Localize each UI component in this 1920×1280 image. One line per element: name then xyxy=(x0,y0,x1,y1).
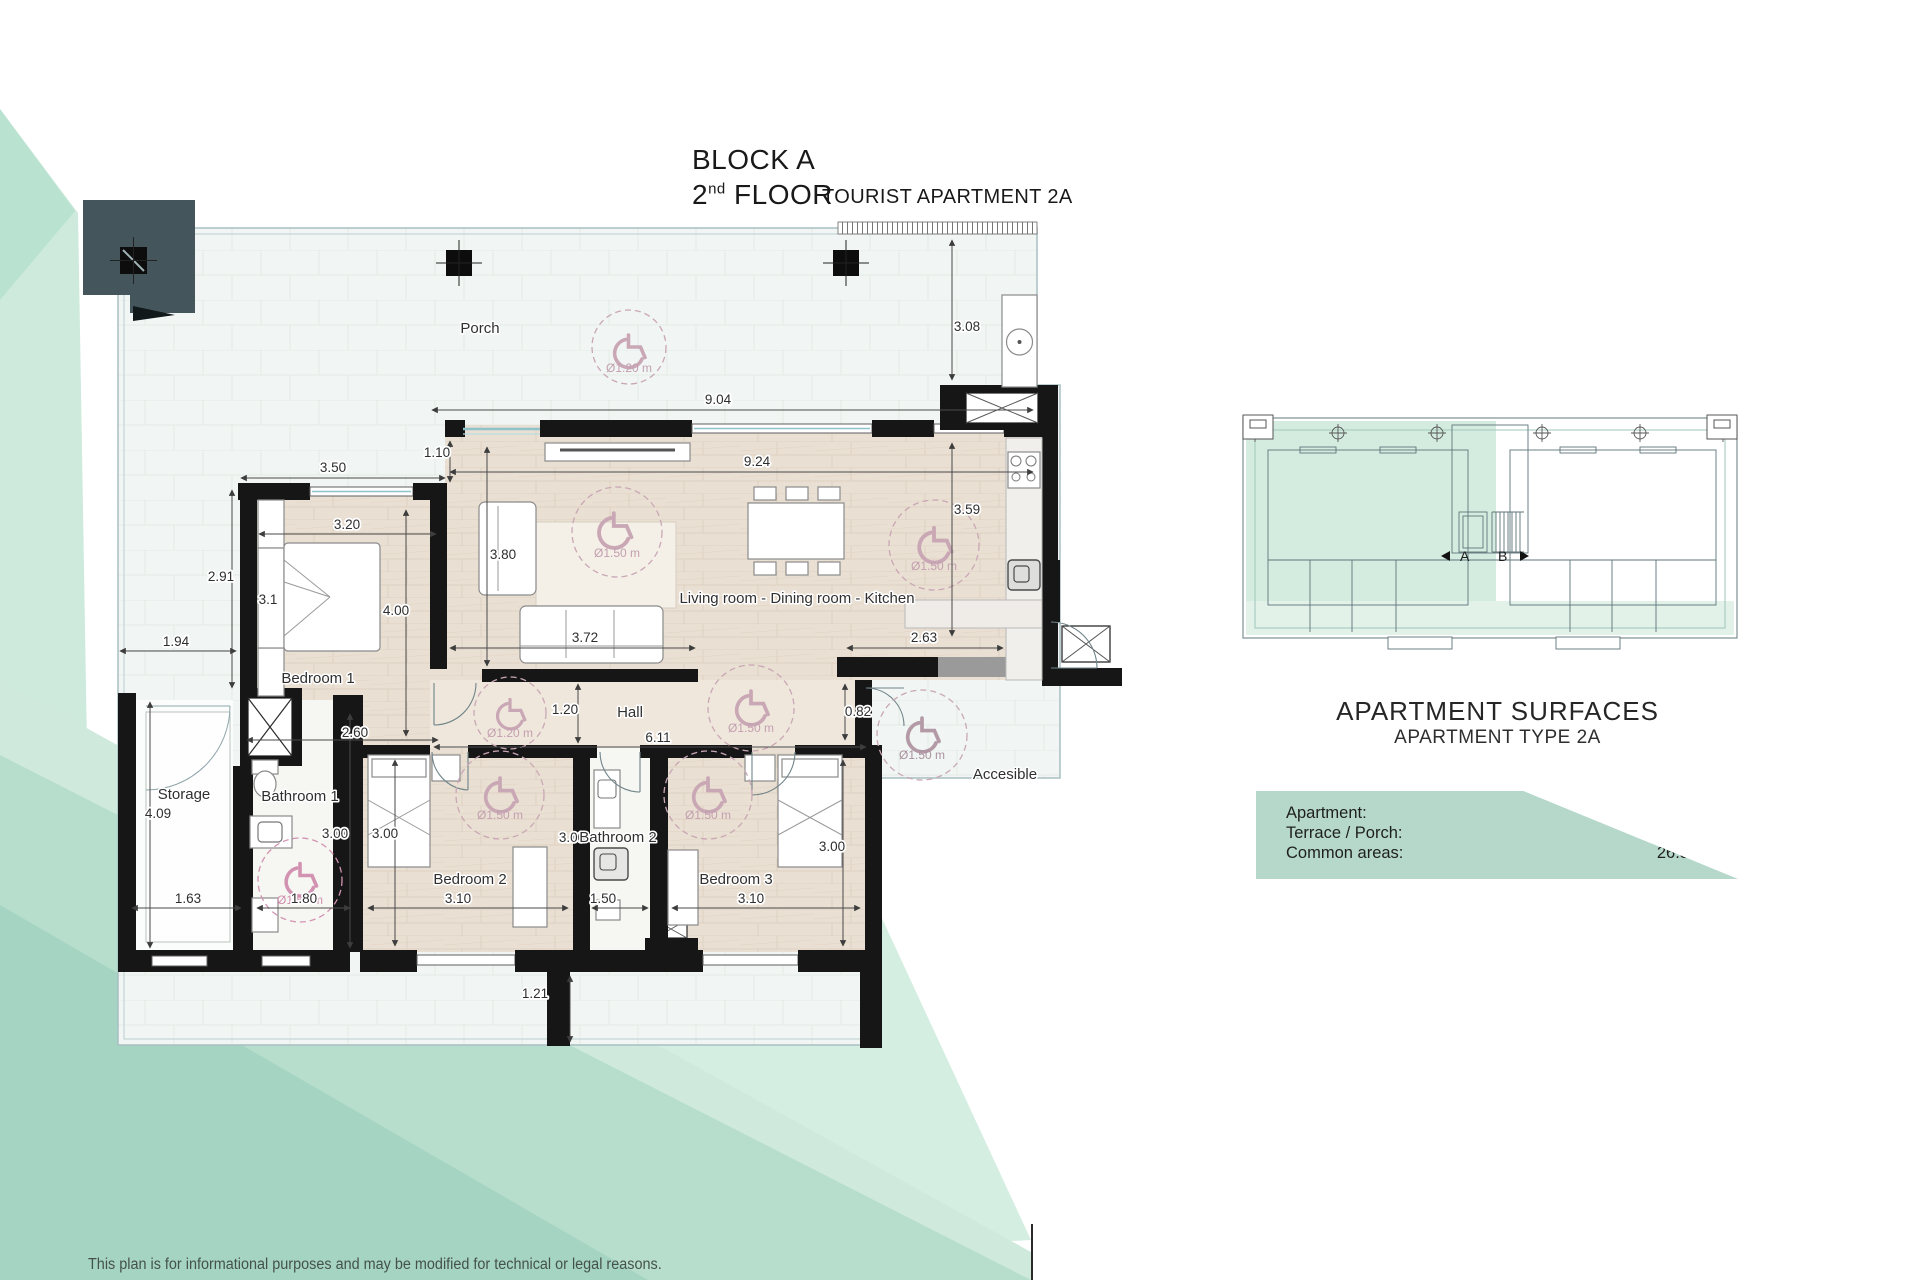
block-title: BLOCK A xyxy=(692,142,833,177)
circle-label: Ø1.50 m xyxy=(594,546,640,560)
surfaces-subtitle: APARTMENT TYPE 2A xyxy=(1255,727,1740,749)
room-label-porch: Porch xyxy=(460,320,499,337)
dim-label: 1.50 xyxy=(590,891,616,906)
unit-b-label: B xyxy=(1498,548,1507,564)
room-label-bedroom2: Bedroom 2 xyxy=(433,871,506,888)
dim-label: 6.11 xyxy=(645,730,670,745)
surface-label: Common areas: xyxy=(1286,844,1403,863)
unit-a-label: A xyxy=(1460,548,1470,564)
room-label-hall: Hall xyxy=(617,704,643,721)
circle-label: Ø1.50 m xyxy=(685,808,731,822)
dim-label: 3.00 xyxy=(322,826,348,841)
circle-label: Ø1.50 m xyxy=(911,559,957,573)
dim-label: 1.20 xyxy=(552,702,578,717)
surface-label: Apartment: xyxy=(1286,804,1367,823)
dim-label: 0.82 xyxy=(845,704,871,719)
dim-label: 3.50 xyxy=(320,460,346,475)
dim-label: 3.72 xyxy=(572,630,598,645)
building-overview-plan: A B xyxy=(1243,415,1737,649)
dim-label: 3.00 xyxy=(372,826,398,841)
dim-label: 3.08 xyxy=(954,319,980,334)
dim-label: 3.10 xyxy=(738,891,764,906)
circle-label: Ø1.20 m xyxy=(606,361,652,375)
dim-label: 1.63 xyxy=(175,891,201,906)
room-label-accessible: Accesible xyxy=(973,766,1037,783)
dim-label: 3.1 xyxy=(259,592,278,607)
dim-label: 3.80 xyxy=(490,547,516,562)
dim-label: 9.24 xyxy=(744,454,771,469)
dim-label: 3.59 xyxy=(954,502,980,517)
circle-label: Ø1.20 m xyxy=(487,726,533,740)
dim-label: 3.10 xyxy=(445,891,471,906)
dim-label: 1.10 xyxy=(424,445,450,460)
dim-label: 9.04 xyxy=(705,392,732,407)
room-label-bedroom3: Bedroom 3 xyxy=(699,871,772,888)
surface-label: Terrace / Porch: xyxy=(1286,824,1402,843)
room-label-bedroom1: Bedroom 1 xyxy=(281,670,354,687)
room-label-storage: Storage xyxy=(158,786,211,803)
dim-label: 4.09 xyxy=(145,806,171,821)
dim-label: 2.60 xyxy=(342,725,368,740)
title-block: BLOCK A 2nd FLOOR xyxy=(692,142,833,212)
surfaces-title: APARTMENT SURFACES xyxy=(1255,696,1740,727)
apartment-type-title: TOURIST APARTMENT 2A xyxy=(822,186,1073,209)
room-label-bathroom2: Bathroom 2 xyxy=(579,829,657,846)
dim-label: 2.63 xyxy=(911,630,937,645)
floor-plan-page: Ø1.20 m Ø1.50 m Ø1.50 m Ø1.20 m Ø1.50 m … xyxy=(0,0,1920,1280)
dim-label: 2.91 xyxy=(208,569,234,584)
dim-label: 1.80 xyxy=(291,891,317,906)
floor-title: 2nd FLOOR xyxy=(692,177,833,212)
circle-label: Ø1.50 m xyxy=(728,721,774,735)
disclaimer-text: This plan is for informational purposes … xyxy=(88,1256,662,1274)
room-label-bathroom1: Bathroom 1 xyxy=(261,788,339,805)
dim-label: 1.94 xyxy=(163,634,190,649)
surface-row-common: Common areas: 26.50 m² xyxy=(1286,844,1722,863)
dim-label: 3.00 xyxy=(819,839,845,854)
room-label-living: Living room - Dining room - Kitchen xyxy=(679,590,914,607)
dim-label: 3.20 xyxy=(334,517,360,532)
dim-label: 1.21 xyxy=(522,986,548,1001)
cursor-line xyxy=(1031,1224,1033,1280)
circle-label: Ø1.50 m xyxy=(477,808,523,822)
circle-label: Ø1.50 m xyxy=(899,748,945,762)
dim-label: 4.00 xyxy=(383,603,409,618)
